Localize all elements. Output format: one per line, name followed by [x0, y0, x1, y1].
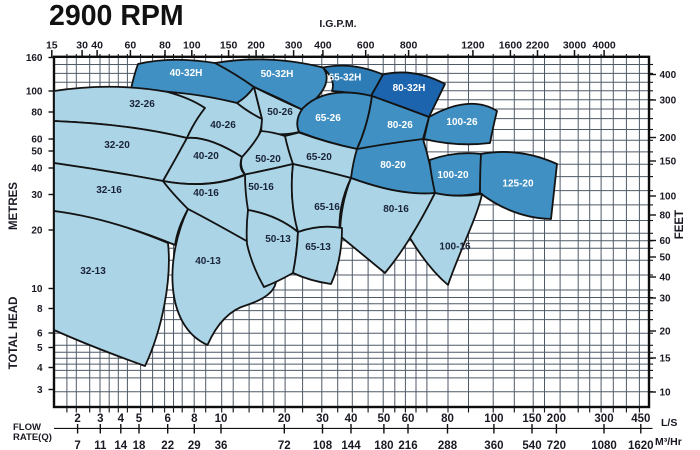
- svg-text:14: 14: [114, 440, 127, 450]
- svg-text:400: 400: [314, 40, 332, 52]
- svg-text:108: 108: [313, 440, 333, 450]
- svg-text:80: 80: [159, 40, 171, 52]
- svg-text:80-20: 80-20: [380, 160, 406, 171]
- svg-text:4: 4: [118, 413, 125, 425]
- svg-text:11: 11: [94, 440, 107, 450]
- svg-text:30: 30: [76, 40, 88, 52]
- svg-text:3: 3: [97, 413, 103, 425]
- svg-text:50: 50: [660, 253, 672, 264]
- svg-text:29: 29: [188, 440, 201, 450]
- svg-text:50: 50: [31, 147, 43, 158]
- svg-text:80-26: 80-26: [387, 120, 413, 131]
- svg-text:100-26: 100-26: [446, 117, 478, 128]
- svg-text:FEET: FEET: [674, 210, 686, 239]
- svg-text:300: 300: [660, 96, 677, 107]
- svg-text:40-16: 40-16: [193, 188, 219, 199]
- svg-text:50-26: 50-26: [267, 107, 293, 118]
- svg-text:65-32H: 65-32H: [329, 73, 362, 84]
- svg-text:100-16: 100-16: [439, 242, 471, 253]
- svg-text:40: 40: [345, 413, 358, 425]
- svg-text:M³/Hr: M³/Hr: [655, 436, 682, 448]
- svg-text:20: 20: [31, 226, 43, 237]
- svg-text:1200: 1200: [461, 40, 485, 52]
- svg-text:40-13: 40-13: [195, 256, 221, 267]
- svg-text:50-32H: 50-32H: [261, 69, 294, 80]
- svg-text:150: 150: [522, 413, 541, 425]
- svg-text:300: 300: [285, 40, 303, 52]
- svg-text:600: 600: [357, 40, 375, 52]
- svg-text:40: 40: [31, 164, 43, 175]
- svg-text:10: 10: [31, 284, 43, 295]
- svg-text:60: 60: [402, 413, 415, 425]
- svg-text:8: 8: [191, 413, 198, 425]
- svg-text:60: 60: [125, 40, 137, 52]
- svg-text:40: 40: [91, 40, 103, 52]
- svg-text:100: 100: [26, 87, 43, 98]
- svg-text:50: 50: [378, 413, 391, 425]
- svg-text:80: 80: [441, 413, 454, 425]
- svg-text:30: 30: [316, 413, 329, 425]
- svg-text:L/S: L/S: [661, 417, 677, 429]
- svg-text:15: 15: [660, 354, 672, 365]
- svg-text:1080: 1080: [591, 440, 617, 450]
- svg-text:80: 80: [660, 211, 672, 222]
- svg-text:200: 200: [247, 40, 265, 52]
- svg-text:5: 5: [37, 343, 43, 354]
- svg-text:100: 100: [484, 413, 503, 425]
- svg-text:200: 200: [660, 133, 677, 144]
- svg-text:4000: 4000: [592, 40, 616, 52]
- svg-text:65-26: 65-26: [315, 113, 341, 124]
- svg-text:40-26: 40-26: [210, 120, 236, 131]
- svg-text:200: 200: [547, 413, 566, 425]
- svg-text:5: 5: [136, 413, 143, 425]
- svg-text:720: 720: [547, 440, 566, 450]
- svg-text:50-13: 50-13: [265, 234, 291, 245]
- svg-text:60: 60: [31, 135, 43, 146]
- svg-text:32-26: 32-26: [129, 99, 155, 110]
- svg-text:8: 8: [37, 304, 43, 315]
- svg-text:2: 2: [74, 413, 80, 425]
- svg-text:20: 20: [278, 413, 291, 425]
- svg-text:160: 160: [26, 53, 43, 64]
- svg-text:360: 360: [484, 440, 503, 450]
- svg-text:60: 60: [660, 236, 672, 247]
- svg-text:144: 144: [341, 440, 361, 450]
- svg-text:36: 36: [215, 440, 228, 450]
- svg-text:80-16: 80-16: [383, 204, 409, 215]
- svg-text:30: 30: [660, 294, 672, 305]
- svg-text:400: 400: [660, 70, 677, 81]
- svg-text:180: 180: [374, 440, 393, 450]
- svg-text:65-13: 65-13: [305, 242, 331, 253]
- svg-text:2200: 2200: [526, 40, 550, 52]
- svg-text:20: 20: [660, 327, 672, 338]
- svg-text:3: 3: [37, 385, 43, 396]
- svg-text:288: 288: [438, 440, 458, 450]
- svg-text:TOTAL HEAD: TOTAL HEAD: [8, 297, 20, 370]
- svg-text:RATE(Q): RATE(Q): [13, 432, 52, 443]
- svg-text:50-16: 50-16: [248, 182, 274, 193]
- svg-text:10: 10: [660, 388, 672, 399]
- svg-text:2900 RPM: 2900 RPM: [49, 0, 184, 32]
- svg-text:65-16: 65-16: [314, 202, 340, 213]
- svg-text:100-20: 100-20: [437, 170, 469, 181]
- svg-text:450: 450: [631, 413, 650, 425]
- svg-text:4: 4: [37, 363, 43, 374]
- svg-text:40: 40: [660, 273, 672, 284]
- svg-text:I.G.P.M.: I.G.P.M.: [319, 18, 356, 30]
- svg-text:1600: 1600: [499, 40, 523, 52]
- svg-text:80: 80: [31, 108, 43, 119]
- svg-text:100: 100: [660, 192, 677, 203]
- svg-text:300: 300: [594, 413, 613, 425]
- svg-text:150: 150: [220, 40, 238, 52]
- svg-text:32-16: 32-16: [96, 185, 122, 196]
- svg-text:540: 540: [522, 440, 541, 450]
- svg-text:32-13: 32-13: [80, 266, 106, 277]
- svg-text:18: 18: [133, 440, 146, 450]
- svg-text:22: 22: [161, 440, 174, 450]
- svg-text:216: 216: [398, 440, 417, 450]
- svg-text:30: 30: [31, 190, 43, 201]
- svg-text:7: 7: [74, 440, 80, 450]
- svg-text:40-20: 40-20: [193, 151, 219, 162]
- svg-text:10: 10: [215, 413, 228, 425]
- svg-text:1620: 1620: [628, 440, 654, 450]
- svg-text:50-20: 50-20: [255, 154, 281, 165]
- svg-text:800: 800: [400, 40, 418, 52]
- svg-text:80-32H: 80-32H: [393, 83, 426, 94]
- svg-text:6: 6: [37, 329, 43, 340]
- svg-text:72: 72: [278, 440, 291, 450]
- svg-text:40-32H: 40-32H: [170, 68, 203, 79]
- svg-text:METRES: METRES: [8, 182, 20, 230]
- svg-text:125-20: 125-20: [502, 179, 534, 190]
- svg-text:150: 150: [660, 157, 677, 168]
- svg-text:32-20: 32-20: [104, 140, 130, 151]
- svg-text:6: 6: [164, 413, 170, 425]
- svg-text:100: 100: [183, 40, 201, 52]
- svg-text:15: 15: [46, 40, 58, 52]
- svg-text:65-20: 65-20: [306, 152, 332, 163]
- svg-text:3000: 3000: [563, 40, 587, 52]
